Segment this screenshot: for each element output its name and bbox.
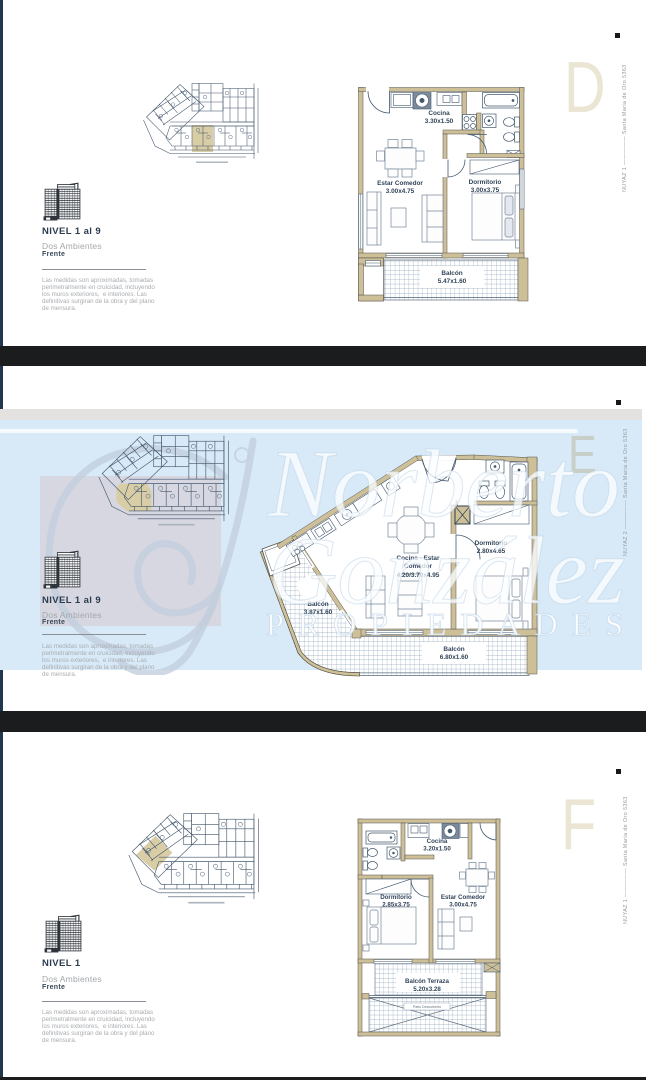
svg-text:Balcón: Balcón	[443, 646, 464, 653]
svg-text:3.00x4.75: 3.00x4.75	[386, 188, 415, 195]
svg-text:3.00x4.75: 3.00x4.75	[449, 902, 477, 909]
svg-text:Balcón Terraza: Balcón Terraza	[405, 978, 449, 985]
svg-text:Dormitorio: Dormitorio	[469, 179, 502, 186]
svg-text:Estar Comedor: Estar Comedor	[377, 180, 423, 187]
svg-text:Cocina: Cocina	[427, 838, 448, 845]
svg-text:3.30x1.50: 3.30x1.50	[425, 118, 454, 125]
svg-text:Patio Descubierto: Patio Descubierto	[413, 1005, 441, 1009]
svg-text:2.85x3.75: 2.85x3.75	[382, 902, 410, 909]
svg-text:Cocina: Cocina	[428, 110, 450, 117]
svg-text:5.20x3.28: 5.20x3.28	[413, 986, 441, 993]
svg-text:3.20x1.50: 3.20x1.50	[423, 846, 451, 853]
svg-text:3.00x3.75: 3.00x3.75	[471, 187, 500, 194]
svg-text:Balcón: Balcón	[441, 270, 462, 277]
svg-text:Estar Comedor: Estar Comedor	[441, 894, 486, 901]
svg-text:5.47x1.60: 5.47x1.60	[438, 278, 467, 285]
svg-text:Dormitorio: Dormitorio	[380, 894, 412, 901]
svg-text:6.80x1.60: 6.80x1.60	[440, 654, 469, 661]
